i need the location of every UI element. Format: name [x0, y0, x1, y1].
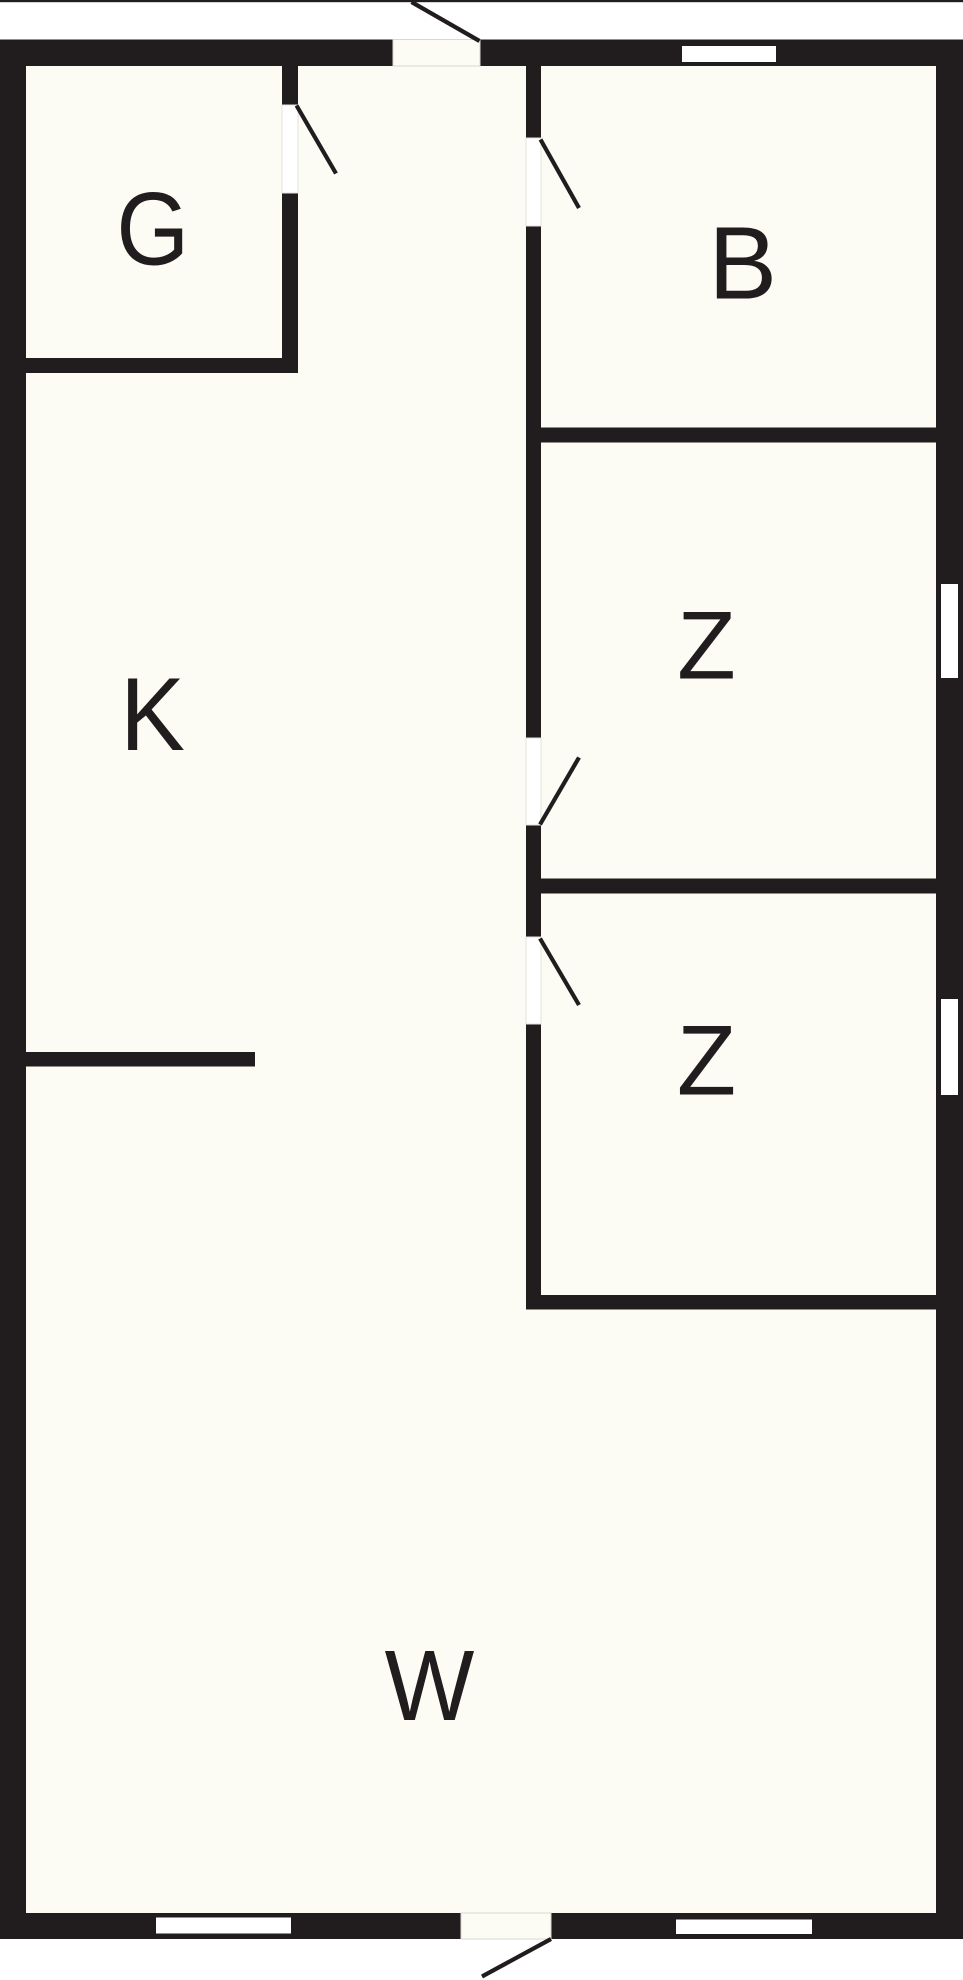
svg-text:Z: Z [677, 1005, 736, 1116]
svg-text:K: K [120, 657, 185, 773]
svg-text:Z: Z [677, 592, 736, 700]
svg-text:W: W [385, 1630, 475, 1742]
svg-text:G: G [116, 170, 189, 287]
svg-text:B: B [708, 205, 777, 320]
